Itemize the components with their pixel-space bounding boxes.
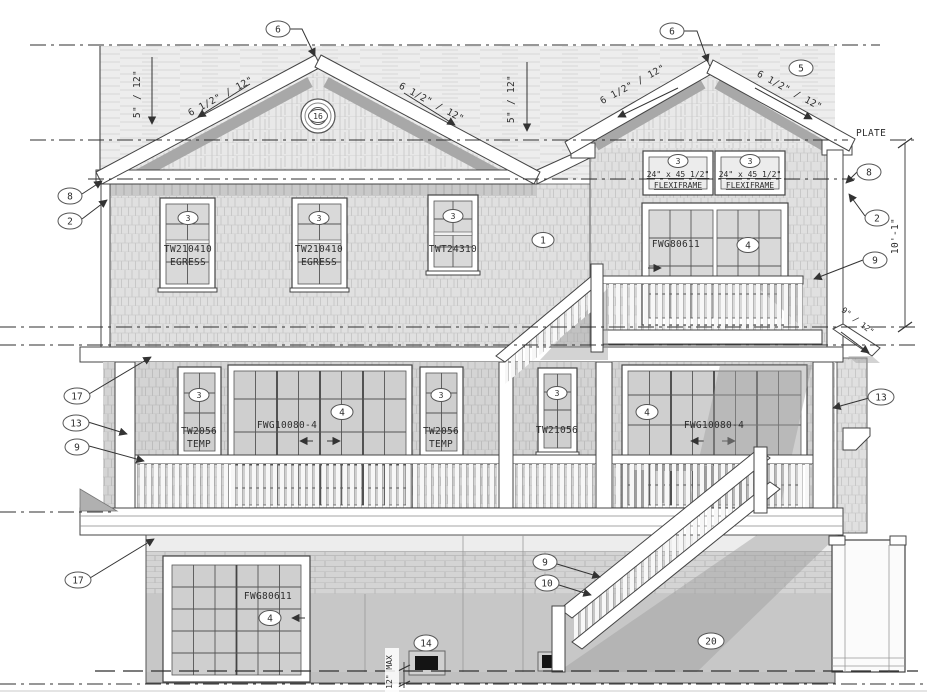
- garage-door: [163, 556, 310, 682]
- svg-text:1: 1: [540, 236, 546, 247]
- callout-ridge-left: 6: [266, 21, 290, 37]
- callout-porch-corner-right: 13: [868, 389, 894, 405]
- egress-center-note: EGRESS: [301, 257, 337, 268]
- porch-window-right-note: TEMP: [429, 439, 453, 450]
- flexiframe-right-size: 24" x 45 1/2": [719, 170, 782, 179]
- callout-eave-right-upper: 8: [857, 164, 881, 180]
- flexiframe-right-name: FLEXIFRAME: [726, 181, 774, 190]
- balcony-door-code: FWG80611: [652, 239, 700, 250]
- main-slope-right: 5" / 12": [506, 75, 517, 123]
- svg-text:2: 2: [67, 217, 73, 228]
- svg-text:8: 8: [866, 168, 872, 179]
- stair-newel-top: [754, 447, 767, 513]
- center-window: [536, 368, 579, 456]
- stair-newel-bottom: [552, 606, 565, 672]
- callout-porch-trim: 17: [64, 388, 90, 404]
- callout-siding: 1: [532, 233, 554, 248]
- svg-text:3: 3: [676, 157, 681, 166]
- porch-door-left-code: FWG10080-4: [257, 420, 317, 431]
- egress-left-code: TW210410: [164, 244, 212, 255]
- callout-lower-wall: 20: [698, 633, 724, 649]
- svg-text:8: 8: [67, 192, 73, 203]
- callout-crawl-vent: 14: [414, 635, 438, 651]
- svg-text:4: 4: [745, 241, 751, 252]
- plate-label: PLATE: [856, 128, 886, 139]
- elevation-sheet: 10'-1" PLATE 12" MAX 5" / 12" 5" / 12" 6…: [0, 0, 927, 700]
- svg-text:5: 5: [798, 64, 804, 75]
- callout-porch-rail: 9: [65, 439, 89, 455]
- rear-elevation-drawing: 10'-1" PLATE 12" MAX 5" / 12" 5" / 12" 6…: [0, 0, 927, 700]
- svg-text:3: 3: [451, 212, 456, 221]
- svg-text:13: 13: [875, 393, 886, 404]
- porch-window-right-code: TW2056: [423, 426, 459, 437]
- svg-text:14: 14: [420, 639, 432, 650]
- egress-left-note: EGRESS: [170, 257, 206, 268]
- callout-ridge-right: 6: [660, 23, 684, 39]
- svg-text:6: 6: [669, 27, 675, 38]
- height-dim-text: 10'-1": [890, 218, 901, 254]
- callout-porch-corner: 13: [63, 415, 89, 431]
- porch-window-left-note: TEMP: [187, 439, 211, 450]
- center-window-code: TW21056: [536, 425, 578, 436]
- svg-text:13: 13: [70, 419, 81, 430]
- egress-center-code: TW210410: [295, 244, 343, 255]
- vent-dim-text: 12" MAX: [385, 655, 394, 689]
- svg-text:9: 9: [74, 443, 80, 454]
- svg-text:2: 2: [874, 214, 880, 225]
- callout-eave-left-upper: 8: [58, 188, 82, 204]
- svg-text:10: 10: [541, 579, 553, 590]
- flexiframe-left-name: FLEXIFRAME: [654, 181, 702, 190]
- svg-text:3: 3: [186, 214, 191, 223]
- svg-text:3: 3: [555, 389, 560, 398]
- balcony: [590, 276, 822, 344]
- callout-roof-shingles: 5: [789, 60, 813, 76]
- callout-stair-rail: 9: [533, 554, 557, 570]
- callout-gable-vent: 16: [309, 110, 328, 123]
- svg-text:9: 9: [872, 256, 878, 267]
- flexiframe-left-size: 24" x 45 1/2": [647, 170, 710, 179]
- svg-text:3: 3: [439, 391, 444, 400]
- porch-fascia: [80, 347, 843, 362]
- svg-text:17: 17: [72, 576, 83, 587]
- svg-text:16: 16: [313, 112, 323, 121]
- outdoor-enclosure: [829, 536, 906, 672]
- svg-text:4: 4: [339, 408, 345, 419]
- svg-text:6: 6: [275, 25, 281, 36]
- window-transom-right: [426, 195, 480, 275]
- callout-lower-trim: 17: [65, 572, 91, 588]
- porch-window-left-code: TW2056: [181, 426, 217, 437]
- svg-text:3: 3: [748, 157, 753, 166]
- transom-code: TWT24310: [429, 244, 477, 255]
- callout-eave-left-lower: 2: [58, 213, 82, 229]
- svg-text:17: 17: [71, 392, 82, 403]
- porch-door-right-code: FWG10080-4: [684, 420, 744, 431]
- svg-text:20: 20: [705, 637, 717, 648]
- main-slope-left: 5" / 12": [132, 70, 143, 118]
- callout-eave-right-lower: 2: [865, 210, 889, 226]
- callout-stair-stringer: 10: [535, 575, 559, 591]
- garage-door-code: FWG80611: [244, 591, 292, 602]
- svg-text:3: 3: [197, 391, 202, 400]
- height-dimension: 10'-1" PLATE: [856, 128, 912, 332]
- svg-text:9: 9: [542, 558, 548, 569]
- svg-text:4: 4: [267, 614, 273, 625]
- svg-text:4: 4: [644, 408, 650, 419]
- callout-balcony-rail: 9: [863, 252, 887, 268]
- svg-text:3: 3: [317, 214, 322, 223]
